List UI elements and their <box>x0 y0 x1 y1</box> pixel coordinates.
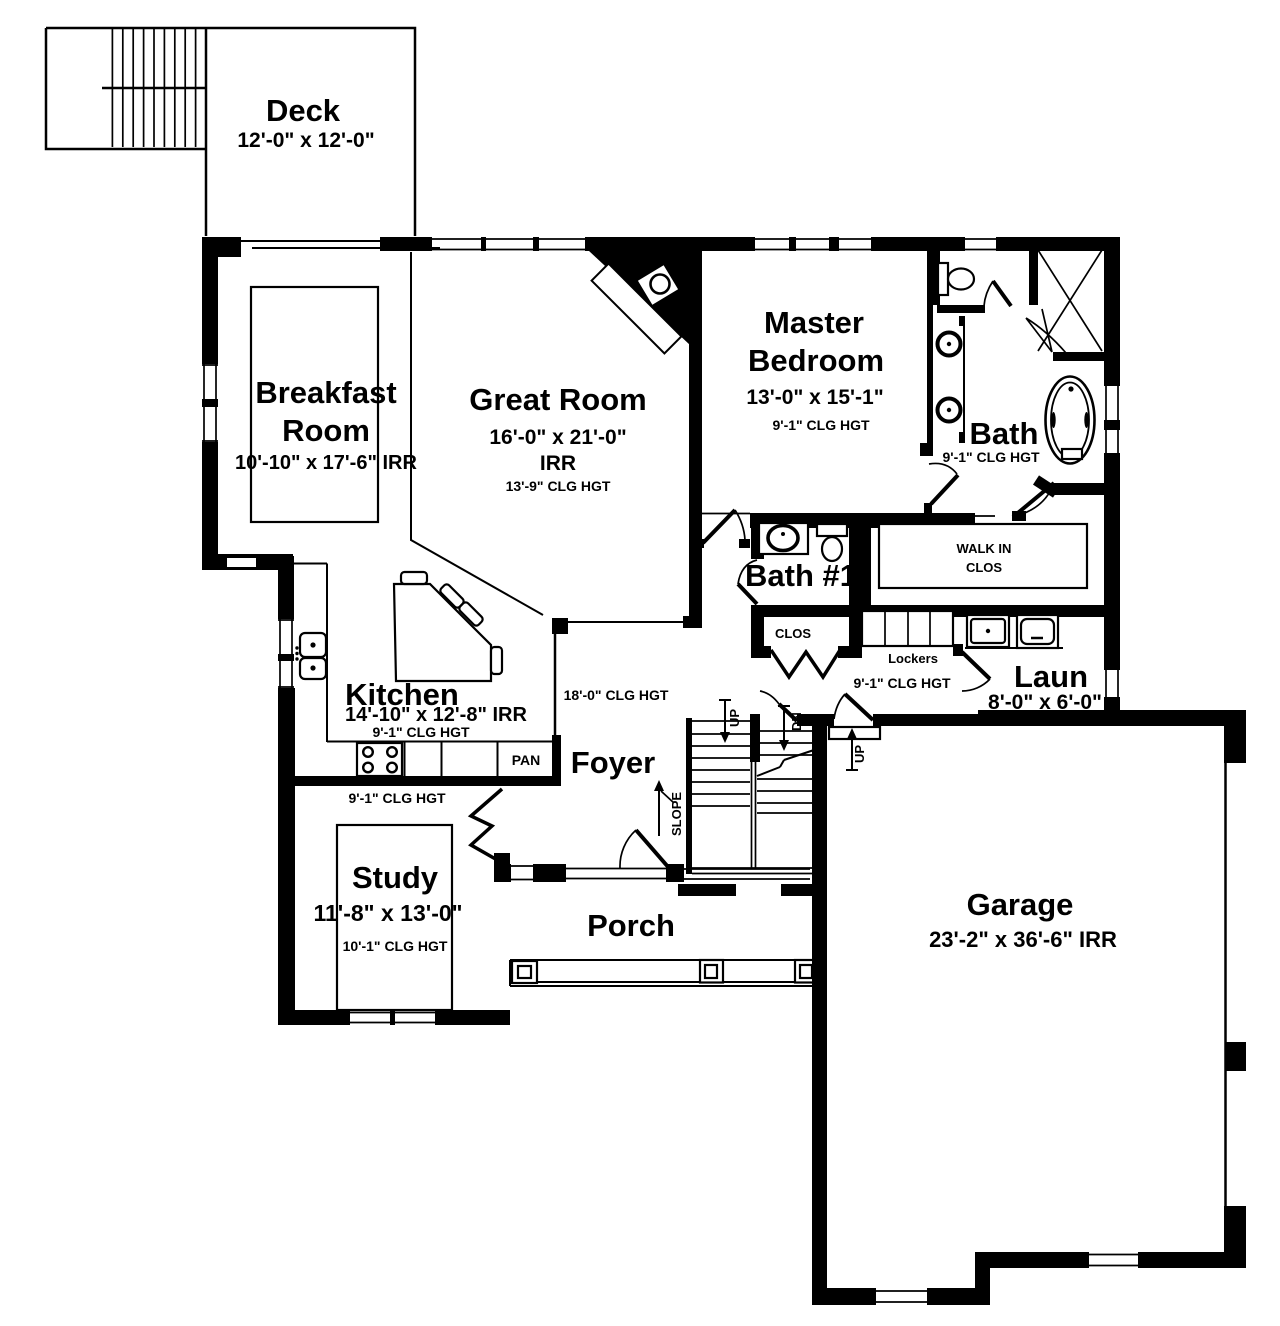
svg-text:12'-0" x 12'-0": 12'-0" x 12'-0" <box>237 129 374 152</box>
svg-text:Breakfast: Breakfast <box>255 375 396 410</box>
svg-text:Bedroom: Bedroom <box>748 343 884 378</box>
svg-text:Bath #1: Bath #1 <box>745 558 857 593</box>
svg-text:13'-0" x 15'-1": 13'-0" x 15'-1" <box>746 386 883 409</box>
svg-text:9'-1" CLG HGT: 9'-1" CLG HGT <box>772 417 870 433</box>
svg-text:13'-9" CLG HGT: 13'-9" CLG HGT <box>506 478 611 494</box>
svg-text:Foyer: Foyer <box>571 745 655 780</box>
svg-text:11'-8" x 13'-0": 11'-8" x 13'-0" <box>313 900 462 926</box>
svg-text:Lockers: Lockers <box>888 651 938 666</box>
svg-text:18'-0" CLG HGT: 18'-0" CLG HGT <box>564 687 669 703</box>
svg-text:UP: UP <box>727 709 742 727</box>
svg-text:Bath: Bath <box>970 416 1039 451</box>
svg-text:9'-1" CLG HGT: 9'-1" CLG HGT <box>853 675 951 691</box>
svg-text:10'-1" CLG HGT: 10'-1" CLG HGT <box>343 938 448 954</box>
svg-text:Garage: Garage <box>967 887 1074 922</box>
svg-text:Great Room: Great Room <box>469 382 646 417</box>
svg-text:9'-1" CLG HGT: 9'-1" CLG HGT <box>372 724 470 740</box>
svg-text:PAN: PAN <box>512 752 541 768</box>
svg-text:Study: Study <box>352 860 439 895</box>
svg-text:Laun: Laun <box>1014 659 1088 694</box>
svg-text:Master: Master <box>764 305 864 340</box>
svg-text:10'-10" x 17'-6" IRR: 10'-10" x 17'-6" IRR <box>235 452 417 474</box>
svg-text:16'-0" x 21'-0": 16'-0" x 21'-0" <box>489 426 626 449</box>
svg-text:23'-2" x 36'-6" IRR: 23'-2" x 36'-6" IRR <box>929 927 1117 952</box>
svg-text:Deck: Deck <box>266 93 341 128</box>
svg-text:14'-10" x 12'-8" IRR: 14'-10" x 12'-8" IRR <box>345 704 527 726</box>
svg-text:Porch: Porch <box>587 908 675 943</box>
svg-text:IRR: IRR <box>540 452 576 475</box>
svg-text:UP: UP <box>852 745 867 763</box>
svg-text:Room: Room <box>282 413 370 448</box>
svg-text:CLOS: CLOS <box>966 560 1002 575</box>
svg-text:SLOPE: SLOPE <box>669 792 684 836</box>
svg-text:WALK IN: WALK IN <box>957 541 1012 556</box>
svg-text:CLOS: CLOS <box>775 626 811 641</box>
svg-text:9'-1" CLG HGT: 9'-1" CLG HGT <box>942 449 1040 465</box>
svg-text:9'-1" CLG HGT: 9'-1" CLG HGT <box>348 790 446 806</box>
